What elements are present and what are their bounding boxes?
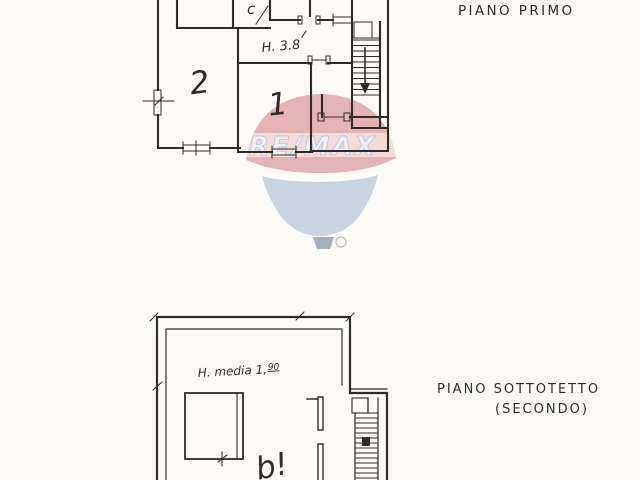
first-floor-height-note: H. 3.8	[261, 38, 301, 56]
attic-title-line1: PIANO SOTTOTETTO	[437, 382, 600, 397]
attic-staircase	[352, 398, 378, 480]
plan-labels: PIANO PRIMO PIANO SOTTOTETTO (SECONDO) c…	[187, 0, 600, 480]
stair-direction-arrow-head	[360, 83, 370, 94]
first-floor-title: PIANO PRIMO	[458, 3, 575, 19]
attic-wall-stubs	[307, 397, 323, 480]
scanned-floorplan-page: RE/MAX	[0, 0, 640, 480]
floorplan-drawing: RE/MAX	[0, 0, 640, 480]
registered-mark-icon	[336, 237, 346, 247]
attic-opening-inner-line	[218, 393, 237, 466]
attic-title-line2: (SECONDO)	[495, 402, 589, 417]
balloon-bottom-shape	[262, 175, 378, 236]
room-label-c: c	[247, 0, 256, 18]
balloon-basket-icon	[313, 237, 334, 249]
room-label-2: 2	[187, 64, 212, 102]
attic-height-note: H. media 1,	[197, 362, 267, 380]
stair-landing	[354, 22, 372, 38]
room-label-1: 1	[266, 86, 289, 124]
attic-dimension-ticks	[150, 312, 354, 390]
attic-opening-rect	[185, 393, 243, 459]
attic-interior-structure	[185, 393, 243, 466]
first-floor-staircase	[353, 22, 380, 95]
attic-stair-arrow-mark	[362, 437, 370, 446]
attic-stair-landing	[352, 398, 368, 413]
remax-wordmark: RE/MAX	[249, 132, 377, 162]
attic-height-note-superscript: 90	[268, 362, 280, 373]
attic-room-label: b!	[252, 446, 291, 480]
